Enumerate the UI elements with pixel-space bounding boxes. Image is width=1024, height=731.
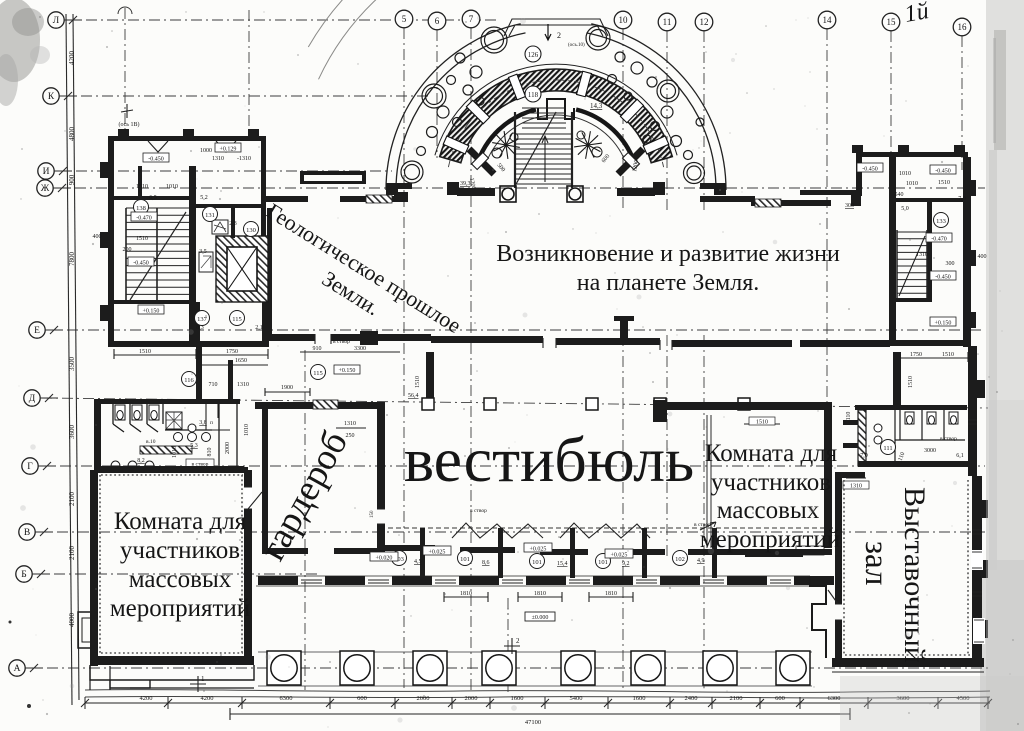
svg-text:2100: 2100	[730, 695, 743, 702]
svg-text:2000: 2000	[417, 695, 430, 702]
svg-text:+0.150: +0.150	[143, 309, 160, 315]
svg-text:-0.450: -0.450	[148, 157, 164, 163]
svg-text:+0.025: +0.025	[429, 550, 446, 556]
svg-text:1810: 1810	[605, 591, 617, 597]
svg-text:1810: 1810	[460, 591, 472, 597]
svg-text:47100: 47100	[525, 719, 541, 726]
svg-text:1510: 1510	[942, 352, 954, 358]
svg-text:1510: 1510	[415, 376, 421, 388]
svg-text:участников: участников	[711, 469, 831, 496]
svg-text:400: 400	[93, 234, 102, 240]
svg-text:300: 300	[845, 203, 854, 209]
svg-text:Г: Г	[27, 462, 33, 472]
svg-text:1010: 1010	[906, 181, 918, 187]
svg-text:600: 600	[357, 695, 367, 702]
svg-text:-0.450: -0.450	[862, 167, 878, 173]
svg-text:133: 133	[936, 218, 946, 225]
svg-text:Е: Е	[34, 326, 40, 336]
svg-text:300: 300	[946, 261, 955, 267]
svg-text:8,6: 8,6	[482, 560, 490, 566]
svg-text:+0.129: +0.129	[220, 147, 237, 153]
svg-text:Возникновение и развитие жизни: Возникновение и развитие жизни	[496, 241, 840, 267]
svg-text:2: 2	[557, 31, 561, 40]
svg-text:в створ: в створ	[470, 508, 487, 514]
svg-text:1310: 1310	[237, 382, 249, 388]
svg-text:115: 115	[232, 316, 242, 323]
svg-text:(ось.10): (ось.10)	[568, 43, 585, 48]
svg-text:1310: 1310	[850, 484, 862, 490]
svg-text:250: 250	[346, 433, 355, 439]
svg-text:130: 130	[246, 227, 256, 234]
svg-text:200: 200	[123, 247, 132, 253]
svg-text:В: В	[24, 528, 30, 538]
svg-text:14: 14	[823, 15, 833, 25]
svg-text:мероприятий: мероприятий	[700, 526, 840, 553]
svg-text:6: 6	[435, 16, 440, 26]
svg-text:в створ: в створ	[694, 522, 711, 528]
svg-text:8,2: 8,2	[137, 458, 145, 464]
svg-text:3600: 3600	[68, 425, 76, 440]
svg-text:12: 12	[700, 17, 709, 27]
svg-text:3000: 3000	[924, 448, 936, 454]
svg-text:1810: 1810	[534, 591, 546, 597]
svg-text:И: И	[43, 167, 50, 177]
svg-text:5,3: 5,3	[190, 443, 198, 449]
svg-text:4200: 4200	[140, 695, 153, 702]
svg-text:8,3: 8,3	[196, 325, 204, 331]
svg-text:2,1: 2,1	[255, 325, 263, 331]
svg-text:101: 101	[598, 559, 608, 566]
svg-text:2: 2	[516, 637, 520, 645]
svg-text:101: 101	[532, 559, 542, 566]
svg-text:4200: 4200	[68, 51, 76, 66]
svg-text:5: 5	[402, 14, 407, 24]
svg-text:зал: зал	[858, 541, 894, 585]
svg-text:5,0: 5,0	[901, 206, 909, 212]
svg-text:39,3: 39,3	[460, 181, 471, 187]
svg-text:138: 138	[136, 205, 146, 212]
svg-text:К: К	[48, 92, 55, 102]
svg-text:540: 540	[895, 192, 904, 198]
svg-text:5400: 5400	[570, 695, 583, 702]
svg-text:п: п	[210, 420, 213, 426]
svg-text:(ось 1В): (ось 1В)	[118, 121, 139, 128]
svg-text:4200: 4200	[201, 695, 214, 702]
svg-text:1900: 1900	[281, 385, 293, 391]
svg-text:710: 710	[209, 382, 218, 388]
svg-text:массовых: массовых	[717, 497, 820, 524]
svg-text:1510: 1510	[756, 420, 768, 426]
svg-text:118: 118	[528, 91, 539, 99]
svg-text:1600: 1600	[511, 695, 524, 702]
svg-text:16: 16	[958, 22, 968, 32]
svg-text:9,2: 9,2	[622, 561, 630, 567]
svg-text:102: 102	[675, 556, 685, 563]
svg-text:-0.450: -0.450	[935, 169, 951, 175]
svg-text:вестибюль: вестибюль	[404, 424, 694, 495]
svg-text:2400: 2400	[685, 695, 698, 702]
svg-text:1010: 1010	[899, 171, 911, 177]
svg-text:6,5: 6,5	[149, 195, 157, 201]
svg-text:±0.000: ±0.000	[532, 615, 549, 621]
svg-text:1750: 1750	[226, 349, 238, 355]
svg-text:10: 10	[619, 15, 629, 25]
svg-text:111: 111	[883, 445, 892, 452]
svg-text:116: 116	[184, 377, 194, 384]
svg-text:6300: 6300	[828, 695, 841, 702]
svg-text:7,0: 7,0	[958, 196, 966, 202]
svg-text:Б: Б	[21, 570, 26, 580]
svg-text:Комната для: Комната для	[705, 440, 838, 467]
svg-text:7800: 7800	[68, 252, 76, 267]
svg-text:1600: 1600	[633, 695, 646, 702]
svg-text:4800: 4800	[68, 127, 76, 142]
svg-text:1510: 1510	[139, 349, 151, 355]
svg-text:7,0: 7,0	[860, 453, 868, 459]
svg-text:+0.025: +0.025	[611, 553, 628, 559]
svg-text:6300: 6300	[280, 695, 293, 702]
svg-text:400: 400	[978, 254, 987, 260]
svg-text:15: 15	[887, 17, 897, 27]
svg-text:Л: Л	[53, 16, 60, 26]
svg-text:1: 1	[201, 675, 205, 683]
svg-text:Выставочный: Выставочный	[898, 487, 931, 663]
svg-text:4,5: 4,5	[414, 559, 422, 565]
svg-text:1010: 1010	[166, 184, 178, 190]
svg-text:14,3: 14,3	[590, 102, 603, 110]
svg-text:2100: 2100	[68, 492, 76, 507]
svg-text:-0.450: -0.450	[935, 275, 951, 281]
svg-text:в створ: в створ	[333, 339, 350, 345]
svg-text:участников: участников	[120, 537, 240, 564]
svg-text:1510: 1510	[938, 180, 950, 186]
svg-text:1000: 1000	[200, 148, 212, 154]
svg-text:в створ: в створ	[940, 436, 957, 442]
svg-text:1310: 1310	[212, 156, 224, 162]
svg-text:1310: 1310	[916, 252, 928, 258]
svg-text:1510: 1510	[136, 184, 148, 190]
svg-text:2000: 2000	[225, 442, 231, 454]
svg-text:+0.150: +0.150	[339, 368, 356, 374]
svg-text:110: 110	[846, 412, 852, 421]
svg-text:5,2: 5,2	[200, 195, 208, 201]
svg-text:131: 131	[205, 212, 215, 219]
svg-text:2,3: 2,3	[229, 221, 237, 227]
svg-text:1510: 1510	[136, 236, 148, 242]
svg-text:в.10: в.10	[146, 439, 156, 445]
svg-text:900: 900	[68, 174, 76, 185]
svg-text:1750: 1750	[910, 352, 922, 358]
svg-text:3300: 3300	[354, 346, 366, 352]
svg-text:3,8: 3,8	[199, 420, 207, 426]
svg-text:2000: 2000	[465, 695, 478, 702]
svg-text:3500: 3500	[68, 357, 76, 372]
svg-text:15,4: 15,4	[557, 561, 568, 567]
svg-text:мероприятий: мероприятий	[110, 595, 250, 622]
svg-text:А: А	[14, 664, 21, 674]
svg-text:3,5: 3,5	[199, 249, 207, 255]
svg-text:1010: 1010	[244, 424, 250, 436]
svg-text:+0.020: +0.020	[376, 556, 393, 562]
svg-text:Ж: Ж	[41, 184, 50, 194]
svg-text:1510: 1510	[908, 376, 914, 388]
svg-text:56,4: 56,4	[408, 393, 419, 399]
svg-text:+0.025: +0.025	[530, 547, 547, 553]
svg-text:126: 126	[528, 51, 539, 59]
svg-text:150: 150	[370, 510, 375, 518]
svg-text:4000: 4000	[68, 613, 76, 628]
svg-text:6,1: 6,1	[956, 453, 964, 459]
svg-text:810: 810	[207, 448, 213, 457]
svg-text:-0.450: -0.450	[133, 261, 149, 267]
svg-text:на планете Земля.: на планете Земля.	[577, 270, 759, 296]
svg-text:-1310: -1310	[237, 156, 251, 162]
svg-text:1010: 1010	[172, 446, 178, 458]
svg-text:Комната для: Комната для	[114, 508, 247, 535]
svg-text:1650: 1650	[235, 358, 247, 364]
svg-text:115: 115	[313, 370, 323, 377]
svg-text:Д: Д	[29, 394, 36, 404]
svg-text:600: 600	[775, 695, 785, 702]
svg-text:101: 101	[460, 556, 470, 563]
svg-text:массовых: массовых	[129, 566, 232, 593]
svg-text:910: 910	[313, 346, 322, 352]
svg-text:7: 7	[469, 14, 474, 24]
svg-text:+0.150: +0.150	[935, 321, 952, 327]
svg-text:2100: 2100	[68, 546, 76, 561]
svg-text:1310: 1310	[344, 421, 356, 427]
svg-text:4,9: 4,9	[697, 558, 705, 564]
svg-text:11: 11	[663, 17, 672, 27]
svg-text:1й: 1й	[903, 0, 931, 28]
svg-text:-0.470: -0.470	[931, 237, 947, 243]
svg-text:-0.470: -0.470	[136, 216, 152, 222]
